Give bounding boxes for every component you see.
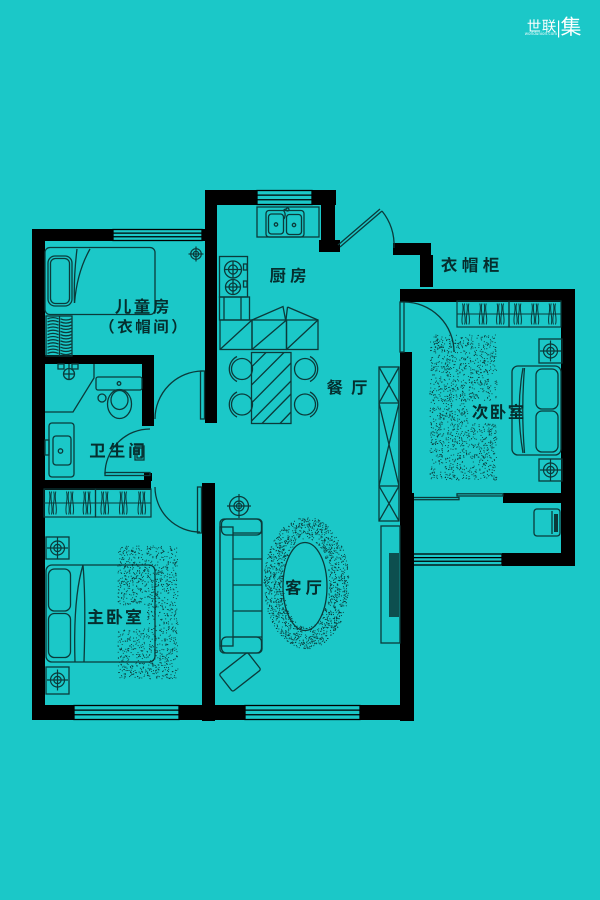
svg-text:worldunion.com: worldunion.com — [525, 31, 557, 36]
